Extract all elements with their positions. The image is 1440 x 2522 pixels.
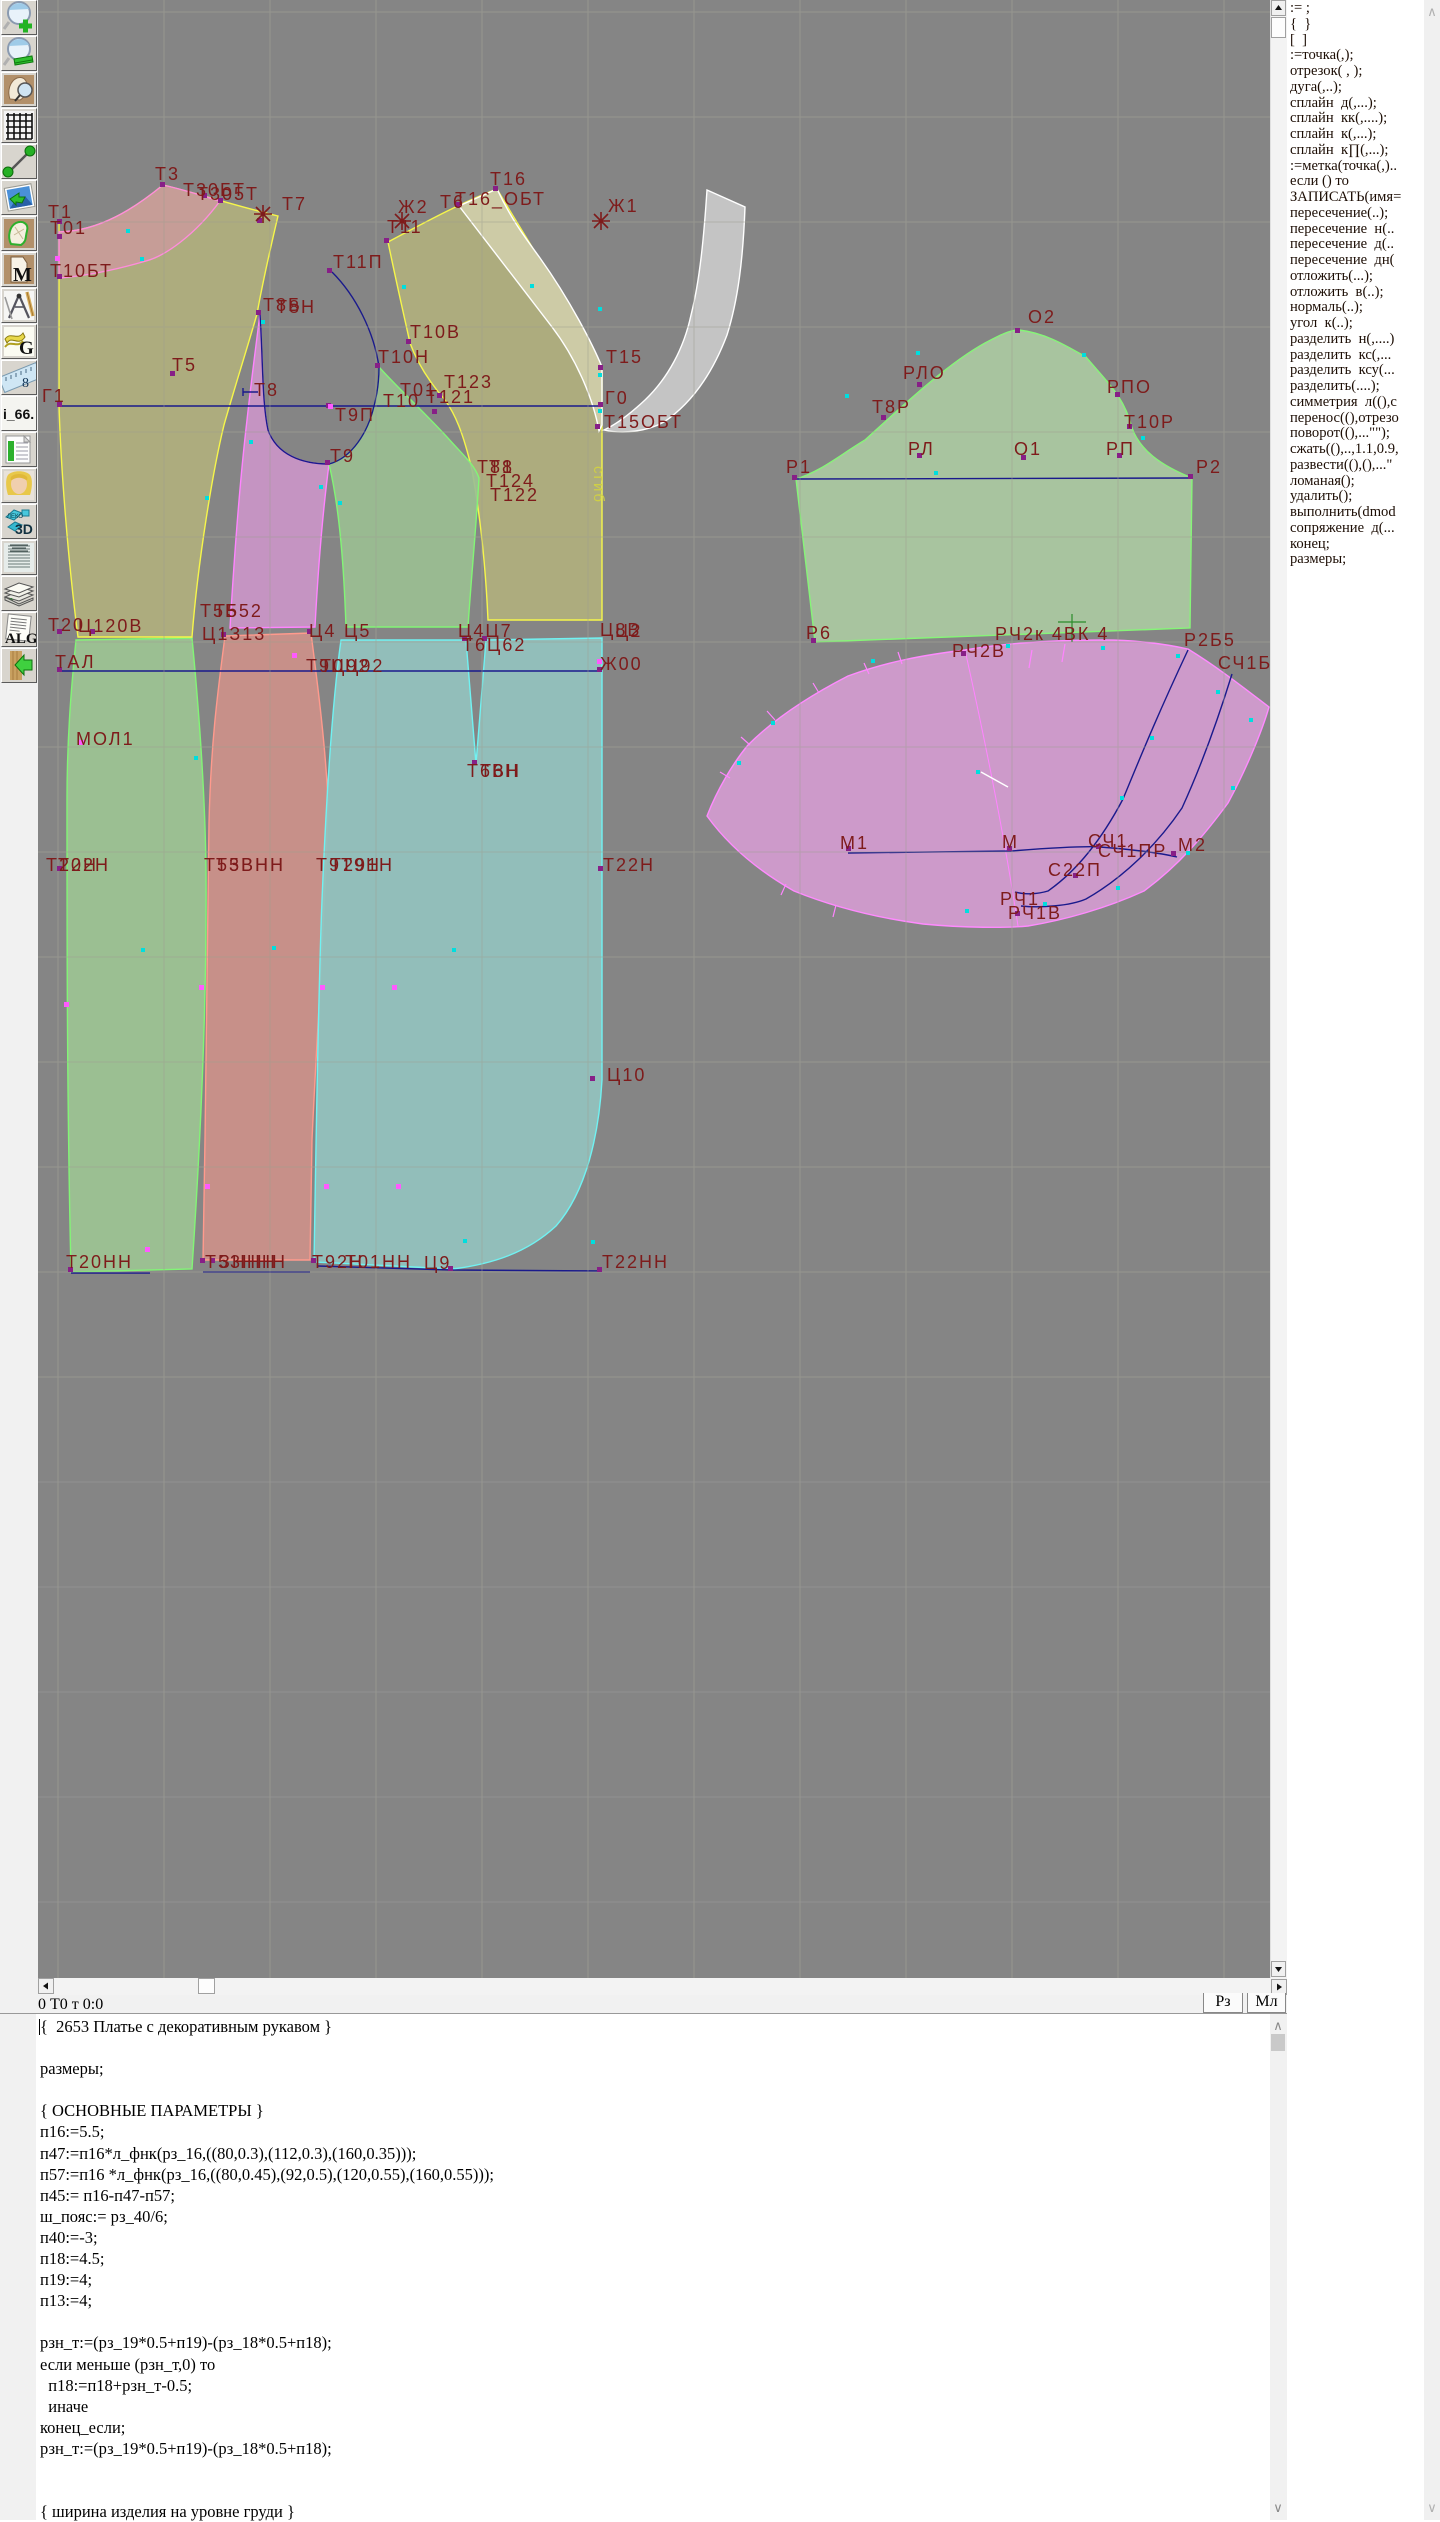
svg-text:Т10Н: Т10Н: [378, 347, 430, 367]
svg-text:Т122: Т122: [490, 485, 539, 505]
svg-text:Т15ОБТ: Т15ОБТ: [604, 412, 683, 432]
svg-text:О1: О1: [1014, 439, 1042, 459]
svg-text:Г0: Г0: [605, 388, 629, 408]
svg-text:РЛ: РЛ: [908, 439, 935, 459]
svg-text:Т5: Т5: [214, 601, 239, 621]
svg-text:Р6: Р6: [806, 623, 832, 643]
svg-text:3D: 3D: [15, 521, 33, 537]
svg-text:M: M: [13, 264, 32, 286]
svg-text:Ц4: Ц4: [309, 621, 336, 641]
svg-text:Т9: Т9: [330, 446, 355, 466]
svg-text:РЛО: РЛО: [903, 363, 946, 383]
svg-text:Т3: Т3: [155, 164, 180, 184]
svg-text:Ц5: Ц5: [344, 621, 371, 641]
svg-text:Т8Р: Т8Р: [872, 397, 911, 417]
svg-text:сгиб: сгиб: [590, 466, 607, 504]
svg-text:Р2: Р2: [1196, 457, 1222, 477]
svg-text:РП: РП: [1106, 439, 1135, 459]
svg-text:Ц10: Ц10: [607, 1065, 646, 1085]
svg-text:Т10В: Т10В: [410, 322, 461, 342]
svg-text:С22П: С22П: [1048, 860, 1102, 880]
svg-text:ТАЛ: ТАЛ: [55, 652, 96, 672]
svg-text:Т291Н: Т291Н: [330, 855, 394, 875]
svg-text:Т10БТ: Т10БТ: [50, 261, 113, 281]
svg-text:М2: М2: [1178, 835, 1207, 855]
svg-text:МОЛ1: МОЛ1: [76, 729, 135, 749]
svg-text:ALG: ALG: [5, 631, 36, 646]
svg-text:Т0Ц92: Т0Ц92: [320, 656, 384, 676]
svg-text:Г1: Г1: [42, 386, 66, 406]
svg-text:РЧ1В: РЧ1В: [1008, 903, 1062, 923]
svg-text:Т16: Т16: [490, 169, 527, 189]
svg-text:Т9П: Т9П: [335, 405, 375, 425]
svg-text:Т01НН: Т01НН: [345, 1252, 412, 1272]
svg-text:Т6Ц62: Т6Ц62: [462, 635, 526, 655]
svg-text:Ц9: Ц9: [424, 1253, 451, 1273]
svg-text:Т8Н: Т8Н: [276, 297, 316, 317]
svg-text:Т22Н: Т22Н: [603, 855, 655, 875]
svg-text:Т10Р: Т10Р: [1124, 412, 1175, 432]
svg-text:Т5: Т5: [172, 355, 197, 375]
svg-text:Т5ВНН: Т5ВНН: [216, 855, 285, 875]
svg-text:ЛЕКО: ЛЕКО: [7, 514, 23, 520]
svg-text:СЧ1Б: СЧ1Б: [1218, 653, 1270, 673]
svg-text:G: G: [19, 338, 34, 358]
svg-text:8: 8: [22, 376, 29, 391]
svg-text:РПО: РПО: [1107, 377, 1152, 397]
svg-text:Т121: Т121: [426, 387, 475, 407]
svg-text:Ж1: Ж1: [608, 196, 639, 216]
svg-text:Ж2: Ж2: [398, 197, 429, 217]
svg-text:Т11: Т11: [387, 217, 423, 237]
svg-text:Т11П: Т11П: [333, 252, 384, 272]
svg-text:Т01: Т01: [50, 218, 87, 238]
svg-text:Ж00: Ж00: [600, 654, 643, 674]
svg-text:Т22Н: Т22Н: [58, 855, 110, 875]
svg-text:Т7: Т7: [282, 194, 307, 214]
svg-text:Т8: Т8: [254, 380, 279, 400]
svg-text:Т20НН: Т20НН: [66, 1252, 133, 1272]
svg-text:Т10: Т10: [383, 391, 420, 411]
svg-text:Ц120В: Ц120В: [78, 616, 143, 636]
svg-text:ЗННН: ЗННН: [219, 1252, 277, 1272]
svg-text:М: М: [1002, 832, 1019, 852]
svg-text:Т15: Т15: [606, 347, 643, 367]
svg-text:Т6Н: Т6Н: [480, 761, 520, 781]
svg-text:Т22НН: Т22НН: [602, 1252, 669, 1272]
svg-text:Ц2: Ц2: [615, 621, 642, 641]
svg-text:Р1: Р1: [786, 457, 812, 477]
svg-text:Т16_ОБТ: Т16_ОБТ: [455, 189, 546, 210]
svg-text:Р2Б5: Р2Б5: [1184, 630, 1236, 650]
svg-text:М1: М1: [840, 833, 869, 853]
svg-text:i_66.: i_66.: [3, 406, 34, 422]
svg-text:РЧ2В: РЧ2В: [952, 641, 1006, 661]
svg-text:Ц1З13: Ц1З13: [202, 624, 266, 644]
svg-text:РЧ2к 4ВК 4: РЧ2к 4ВК 4: [995, 624, 1109, 644]
svg-text:СЧ1ПР: СЧ1ПР: [1098, 841, 1167, 861]
svg-text:Т305Т: Т305Т: [197, 184, 259, 204]
svg-text:О2: О2: [1028, 307, 1056, 327]
